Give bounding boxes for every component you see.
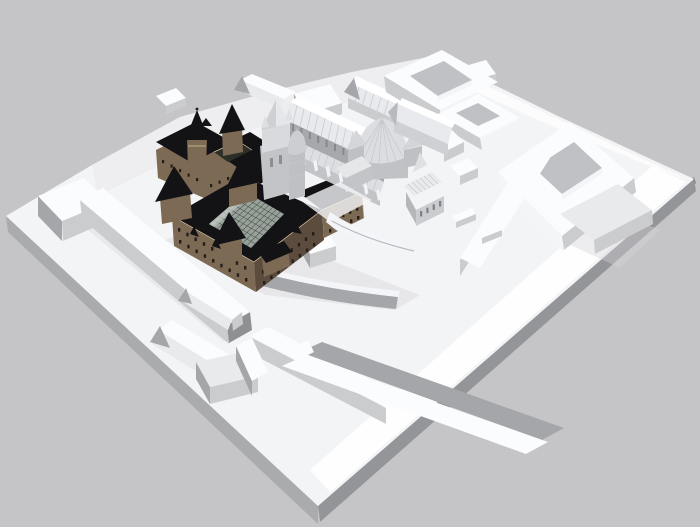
quad-window bbox=[305, 237, 307, 241]
wing-window bbox=[188, 174, 190, 177]
finial bbox=[196, 108, 199, 111]
stair-turret bbox=[288, 128, 306, 200]
wing-window bbox=[227, 177, 229, 180]
quad-window bbox=[203, 242, 205, 246]
tower-body bbox=[187, 138, 207, 170]
quad-window bbox=[195, 238, 197, 242]
quad-window bbox=[179, 240, 181, 244]
quad-window bbox=[236, 261, 238, 265]
range-window bbox=[329, 229, 331, 233]
clerestory-window bbox=[317, 136, 319, 143]
window bbox=[270, 158, 273, 167]
quad-window bbox=[298, 243, 300, 247]
quad-window bbox=[313, 243, 315, 247]
wing-window bbox=[196, 178, 198, 181]
arched-window bbox=[426, 208, 428, 214]
range-window bbox=[350, 219, 352, 223]
window bbox=[279, 155, 282, 164]
quad-window bbox=[245, 278, 247, 282]
quad-window bbox=[212, 259, 214, 263]
quad-window bbox=[292, 259, 294, 263]
clerestory-window bbox=[309, 132, 311, 139]
wing-window bbox=[179, 169, 181, 172]
quad-window bbox=[229, 269, 231, 273]
wing-window bbox=[171, 165, 173, 168]
quad-window bbox=[186, 233, 188, 237]
arched-window bbox=[433, 204, 435, 210]
quad-window bbox=[220, 264, 222, 268]
arched-window bbox=[420, 211, 422, 217]
finial bbox=[296, 128, 299, 131]
quad-window bbox=[270, 276, 272, 280]
clerestory-window bbox=[292, 124, 294, 131]
quad-window bbox=[196, 250, 198, 254]
clerestory-window bbox=[326, 140, 328, 147]
quad-window bbox=[263, 281, 265, 285]
model-viewport bbox=[0, 0, 700, 527]
quad-window bbox=[306, 248, 308, 252]
quad-window bbox=[237, 273, 239, 277]
quad-window bbox=[204, 254, 206, 258]
body bbox=[289, 148, 305, 200]
quad-window bbox=[312, 232, 314, 236]
3d-model-render bbox=[0, 0, 700, 527]
quad-window bbox=[244, 266, 246, 270]
arched-window bbox=[439, 201, 441, 207]
wing-window bbox=[162, 160, 164, 163]
quad-window bbox=[187, 245, 189, 249]
range-window bbox=[357, 216, 359, 220]
wing-window bbox=[219, 181, 221, 184]
quad-window bbox=[178, 228, 180, 232]
clerestory-window bbox=[342, 148, 344, 155]
quad-window bbox=[211, 247, 213, 251]
wing-window bbox=[210, 184, 212, 187]
quad-window bbox=[299, 254, 301, 258]
clerestory-window bbox=[334, 144, 336, 151]
